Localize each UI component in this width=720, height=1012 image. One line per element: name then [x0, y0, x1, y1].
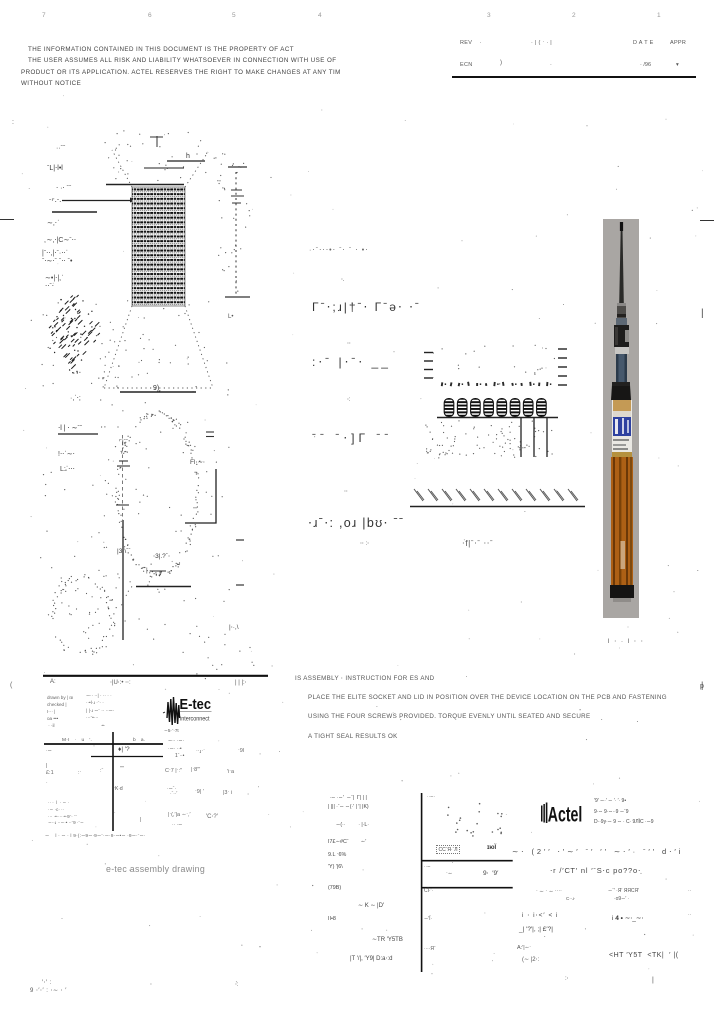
svg-text:9): 9) — [153, 385, 159, 392]
svg-text:··ˉˉ: ··ˉˉ — [56, 145, 66, 152]
svg-text:∼•|⋅|,ˈ: ∼•|⋅|,ˈ — [45, 274, 63, 282]
svg-text:|3⋅\ˉˉ: |3⋅\ˉˉ — [117, 548, 131, 555]
svg-text:, ∼,⋅|C∼ˉ⋅⋅: , ∼,⋅|C∼ˉ⋅⋅ — [44, 237, 76, 244]
svg-text:L•: L• — [228, 314, 233, 320]
svg-text:|: | — [146, 567, 148, 574]
svg-text:h: h — [186, 153, 190, 160]
svg-text:!⋅⋅ˈ∼⋅: !⋅⋅ˈ∼⋅ — [58, 450, 75, 458]
svg-text:ˉ⋅∼⋅ˉ ˉ⋅⋅ ˉ•: ˉ⋅∼⋅ˉ ˉ⋅⋅ ˉ• — [42, 258, 73, 265]
svg-text:E-tec: E-tec — [180, 696, 212, 713]
svg-text:⋅3|.?ˉ⋅: ⋅3|.?ˉ⋅ — [153, 553, 170, 560]
svg-text:ˉL|⋅l•l: ˉL|⋅l•l — [47, 165, 63, 172]
svg-text:·,ˈ⋅;: ·,ˈ⋅; — [70, 394, 81, 402]
svg-text:interconnect: interconnect — [180, 716, 210, 723]
svg-text:⋅⋅ˉ⋅: ⋅⋅ˉ⋅ — [45, 283, 54, 290]
svg-text:⋅ ·⋅ ˉˉ: ⋅ ·⋅ ˉˉ — [56, 185, 72, 192]
svg-text:⋅l | ⋅ ∼ˉˉ: ⋅l | ⋅ ∼ˉˉ — [58, 425, 83, 432]
svg-text:Actel: Actel — [548, 804, 583, 827]
svg-text:⌜|ˉˉ: ⌜|ˉˉ — [119, 438, 128, 446]
svg-text:L:ˈ⋅⋅⋅: L:ˈ⋅⋅⋅ — [60, 465, 75, 473]
svg-text:∼,⋅ˈ: ∼,⋅ˈ — [47, 219, 59, 227]
svg-text:|ˉ⋅⋅,|⋅ˉ·⋅⋅ˈ: |ˉ⋅⋅,|⋅ˉ·⋅⋅ˈ — [42, 249, 68, 257]
svg-text:Fl⋅∼⋅: Fl⋅∼⋅ — [190, 459, 205, 466]
svg-text:ˉ⌜⋅ˉ⋅: ˉ⌜⋅ˉ⋅ — [49, 198, 61, 206]
svg-text:|⋅·,\: |⋅·,\ — [229, 624, 239, 631]
